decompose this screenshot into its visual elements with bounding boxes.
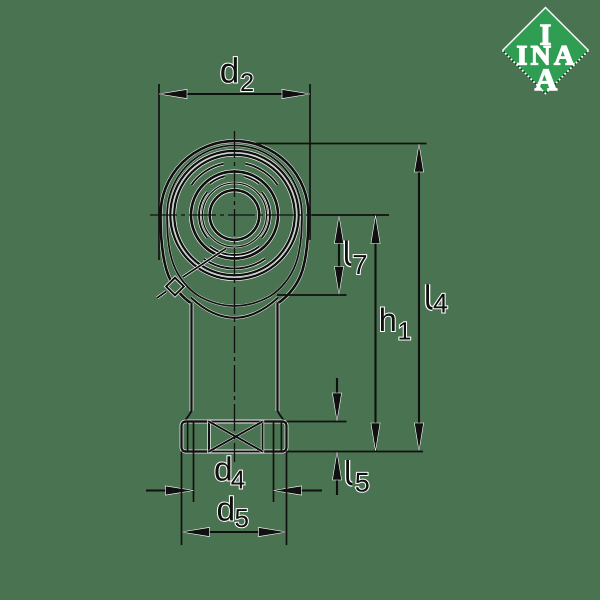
svg-text:5: 5: [355, 468, 370, 498]
svg-text:5: 5: [235, 503, 249, 533]
svg-text:4: 4: [231, 465, 245, 495]
svg-text:4: 4: [433, 289, 448, 319]
svg-text:1: 1: [398, 317, 412, 345]
svg-text:h: h: [379, 302, 397, 338]
svg-text:d: d: [217, 492, 236, 529]
svg-text:2: 2: [240, 69, 254, 97]
svg-text:A: A: [535, 62, 558, 97]
svg-text:d: d: [220, 52, 239, 91]
svg-text:7: 7: [352, 249, 367, 280]
